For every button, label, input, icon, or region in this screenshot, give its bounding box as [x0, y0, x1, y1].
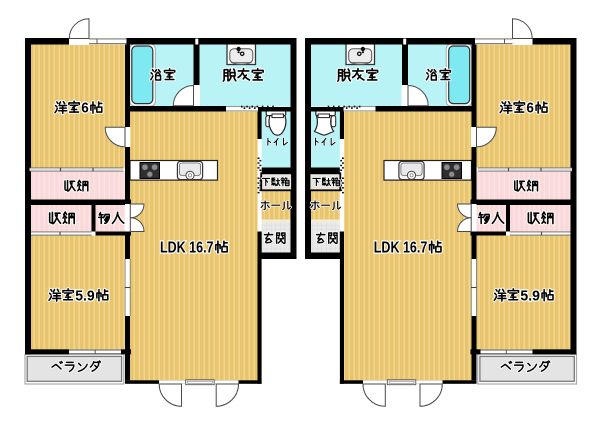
svg-text:LDK 16.7: LDK 16.7: [160, 239, 214, 256]
svg-text:5.9: 5.9: [75, 287, 95, 304]
svg-text:6: 6: [81, 100, 89, 117]
svg-text:5.9: 5.9: [520, 287, 540, 304]
svg-text:6: 6: [526, 100, 534, 117]
svg-text:LDK 16.7: LDK 16.7: [374, 239, 428, 256]
